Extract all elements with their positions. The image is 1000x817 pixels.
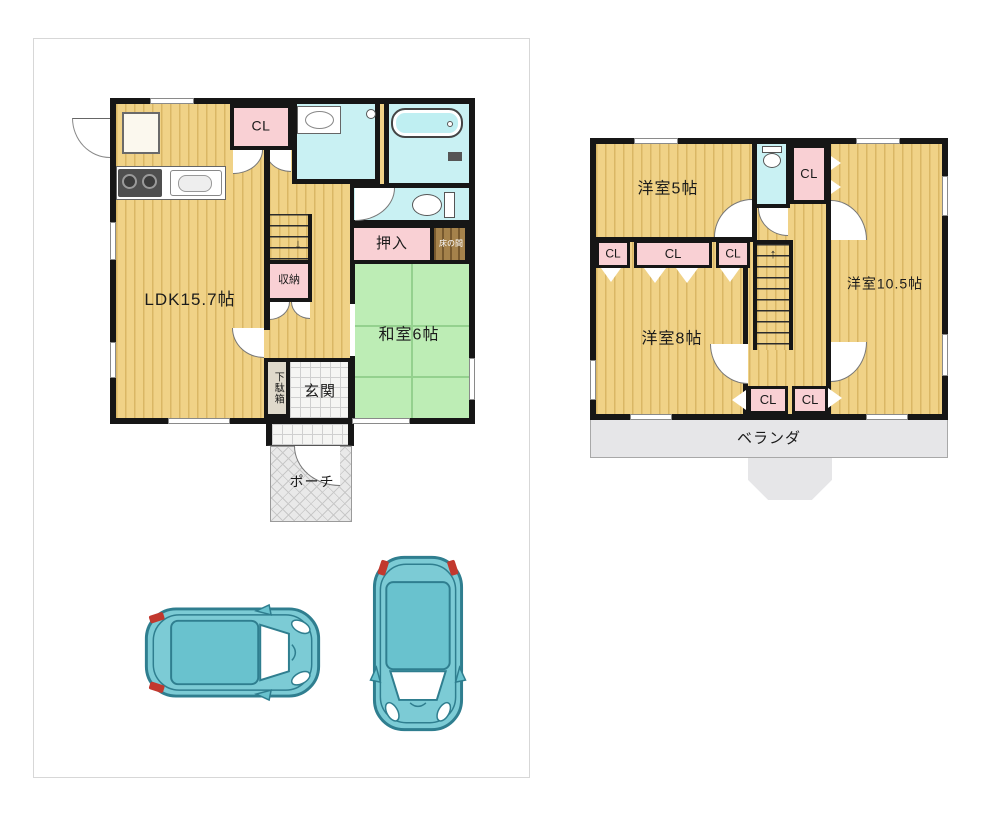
yoshitsu105-label: 洋室10.5帖: [847, 277, 923, 292]
washer-faucet-icon: [366, 109, 376, 119]
floor1-plan: CL 押入 床の間 和室6帖 ↓ 収納: [110, 98, 475, 424]
window: [168, 418, 230, 424]
door-arc: [232, 328, 264, 358]
closet-cl-2f-top-label: CL: [800, 167, 818, 181]
door-arc: [291, 302, 310, 319]
window: [110, 222, 116, 260]
window: [590, 360, 596, 400]
window: [352, 418, 410, 424]
closet-cl-2f-bottom-left-label: CL: [760, 393, 777, 407]
window: [942, 176, 948, 216]
sink-basin-icon: [178, 175, 212, 192]
floor-plan-image: CL 押入 床の間 和室6帖 ↓ 収納: [0, 0, 1000, 817]
ldk-label: LDK15.7帖: [144, 291, 235, 309]
shower-fixture-icon: [448, 152, 462, 161]
toilet-icon: [412, 194, 442, 216]
car-top-view-icon: [369, 554, 468, 734]
stove-burner-icon: [122, 174, 137, 189]
car-top-view-icon: [143, 603, 322, 702]
closet-cl-2f-mid-center-label: CL: [665, 247, 682, 261]
veranda-step: [748, 458, 832, 500]
window: [150, 98, 194, 104]
refrigerator-icon: [122, 112, 160, 154]
toilet-tank-icon: [762, 146, 782, 153]
veranda-label: ベランダ: [737, 431, 801, 447]
stairs-down-arrow-icon: ↓: [295, 237, 302, 251]
bath-drain-icon: [447, 121, 453, 127]
window: [856, 138, 900, 144]
yoshitsu8-label: 洋室8帖: [642, 332, 703, 349]
washbasin-bowl-icon: [305, 111, 334, 129]
stairs-up-arrow-icon: ↑: [770, 247, 777, 261]
closet-cl-2f-bottom-right-label: CL: [802, 393, 819, 407]
kitchen-stove-icon: [118, 169, 162, 197]
door-fold-icon: [828, 388, 842, 408]
door-fold-icon: [732, 390, 746, 410]
yoshitsu5-label: 洋室5帖: [638, 182, 699, 199]
kitchen-sink-icon: [170, 170, 222, 196]
window: [634, 138, 678, 144]
door-arc: [233, 150, 263, 174]
toilet-icon: [763, 153, 781, 168]
window: [110, 342, 116, 378]
door-arc: [758, 208, 788, 236]
porch-label: ポーチ: [290, 475, 335, 490]
genkan-label: 玄関: [304, 384, 336, 400]
window: [469, 358, 475, 400]
getabako-label: 下駄箱: [272, 372, 283, 405]
genkan-extension: [266, 424, 354, 446]
shuno-label: 収納: [278, 275, 300, 287]
bathtub-icon: [391, 108, 463, 138]
sliding-door-gap: [350, 304, 355, 356]
door-arc: [269, 302, 290, 320]
closet-cl-2f-mid-right-label: CL: [725, 248, 740, 261]
toilet-tank-icon: [444, 192, 455, 218]
interior-wall: [264, 150, 270, 330]
closet-cl-2f-mid-left-label: CL: [605, 248, 620, 261]
washbasin-icon: [297, 106, 341, 134]
closet-cl-1f-label: CL: [252, 119, 271, 134]
washitsu-label: 和室6帖: [379, 328, 440, 345]
stove-burner-icon: [142, 174, 157, 189]
floor2-plan: 洋室5帖 CL 洋室10.5帖 CL CL CL ↑ 洋室8帖: [590, 138, 948, 420]
tokonoma-label: 床の間: [439, 240, 463, 248]
oshiire-label: 押入: [376, 236, 408, 252]
window: [942, 334, 948, 376]
stairs-1f: [266, 214, 312, 260]
